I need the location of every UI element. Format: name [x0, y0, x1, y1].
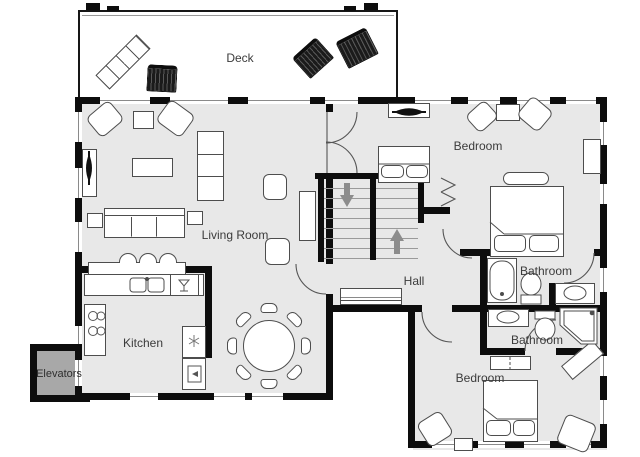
bathroom-vanity	[488, 309, 529, 327]
bathroom-vanity	[555, 283, 595, 304]
window	[478, 441, 505, 448]
dining-table	[243, 320, 295, 372]
side-table	[187, 211, 203, 225]
side-table	[454, 438, 473, 451]
bed-bench	[503, 172, 549, 185]
wall-bedroom2-west	[408, 312, 415, 448]
dresser	[490, 356, 531, 370]
oven	[182, 358, 206, 390]
room-label-bedroom-bottom: Bedroom	[456, 371, 505, 385]
armchair	[263, 174, 287, 200]
sideboard	[299, 191, 316, 241]
bookshelf	[197, 131, 224, 201]
wall-bathroom1-north	[594, 249, 607, 256]
wall-bathrooms-west	[480, 249, 487, 355]
room-label-kitchen: Kitchen	[123, 336, 163, 350]
window	[214, 393, 245, 400]
window	[600, 400, 607, 424]
tv-shelf	[388, 103, 430, 118]
wall-bathroom2-south	[483, 348, 525, 355]
side-table	[133, 111, 154, 129]
room-label-bathroom-top: Bathroom	[520, 264, 572, 278]
window	[566, 97, 596, 104]
window	[75, 168, 82, 198]
wall-annex-bottom	[30, 395, 90, 402]
dining-chair	[261, 379, 278, 389]
side-table	[87, 213, 103, 228]
railing-post	[86, 3, 100, 10]
dining-chair	[261, 303, 278, 313]
stove	[84, 304, 106, 356]
pillow	[529, 235, 559, 252]
room-label-bathroom-bottom: Bathroom	[511, 333, 563, 347]
dishwasher	[170, 274, 199, 296]
window	[252, 393, 283, 400]
window	[600, 184, 607, 204]
window	[75, 222, 82, 252]
sofa	[104, 208, 185, 238]
fridge	[182, 326, 206, 358]
deck-sliding-door	[325, 97, 358, 104]
floor-plan: Deck Bedroom Living Room Hall Kitchen El…	[0, 0, 640, 457]
pillow	[381, 165, 404, 178]
bathtub	[487, 258, 517, 303]
window	[600, 356, 607, 376]
room-label-deck: Deck	[226, 51, 253, 65]
deck-chair	[146, 64, 177, 93]
stairs-down-flight	[324, 179, 370, 261]
window	[600, 268, 607, 292]
pillow	[486, 420, 511, 436]
railing-post	[107, 6, 119, 11]
wall-annex-top	[30, 344, 78, 351]
side-table	[496, 104, 520, 121]
window	[130, 393, 158, 400]
railing-post	[364, 3, 378, 10]
room-label-hall: Hall	[404, 274, 425, 288]
wall-south-left	[75, 393, 333, 400]
window	[524, 441, 550, 448]
deck-railing-line	[82, 15, 394, 16]
wall-stair-jamb	[418, 207, 450, 214]
room-label-elevators: Elevators	[36, 368, 82, 380]
window	[75, 326, 82, 344]
window	[170, 97, 228, 104]
room-label-bedroom-top: Bedroom	[454, 139, 503, 153]
room-label-living-room: Living Room	[202, 228, 269, 242]
armchair	[265, 238, 290, 265]
window	[600, 122, 607, 145]
railing-post	[344, 6, 356, 11]
pillow	[494, 235, 526, 252]
window	[75, 112, 82, 142]
hall-closet	[340, 288, 402, 305]
stairs-up-flight	[376, 179, 418, 261]
wall-kitchen-right	[205, 266, 212, 358]
dresser	[583, 139, 601, 174]
tv-cabinet	[82, 149, 97, 197]
wall-hall-south	[326, 305, 422, 312]
wall-west	[75, 350, 82, 360]
pillow	[406, 165, 428, 178]
window	[248, 97, 310, 104]
dining-chair	[301, 338, 311, 355]
dining-chair	[227, 338, 237, 355]
coffee-table	[132, 158, 173, 177]
pillow	[513, 420, 535, 436]
